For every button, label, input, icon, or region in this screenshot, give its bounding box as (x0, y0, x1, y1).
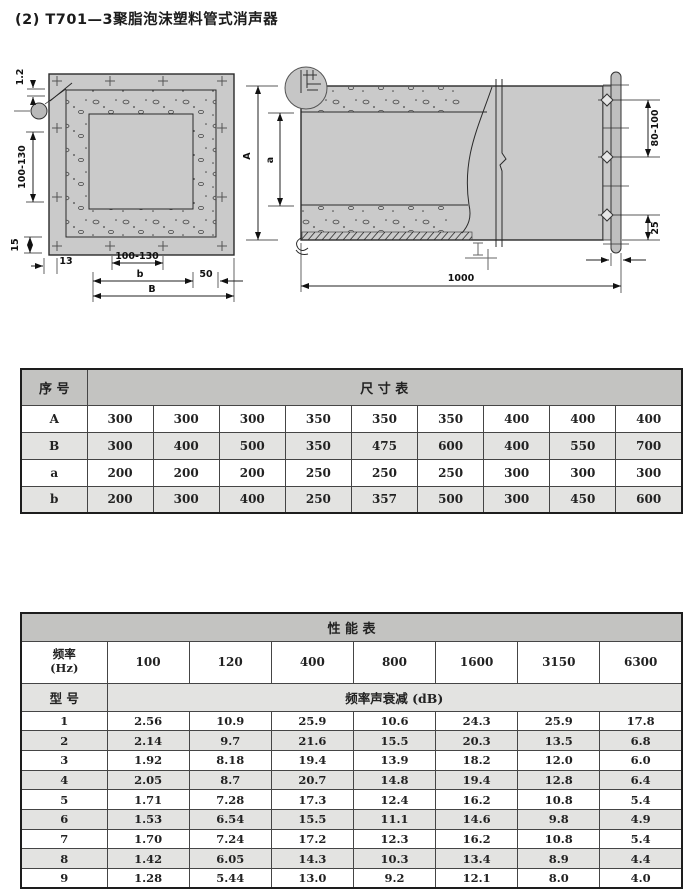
value-cell: 19.4 (436, 770, 518, 790)
svg-text:b: b (137, 269, 144, 280)
value-cell: 400 (484, 405, 550, 432)
value-cell: 450 (550, 486, 616, 513)
table-row: 42.058.720.714.819.412.86.4 (21, 770, 682, 790)
value-cell: 250 (418, 459, 484, 486)
value-cell: 5.44 (189, 869, 271, 889)
value-cell: 1.42 (107, 849, 189, 869)
svg-text:A: A (242, 152, 253, 160)
value-cell: 12.8 (518, 770, 600, 790)
value-cell: 12.4 (353, 790, 435, 810)
perf-table-body: 12.5610.925.910.624.325.917.822.149.721.… (21, 711, 682, 888)
row-label-cell: A (21, 405, 87, 432)
value-cell: 400 (153, 432, 219, 459)
value-cell: 6.05 (189, 849, 271, 869)
value-cell: 17.8 (600, 711, 682, 731)
table-row: 71.707.2417.212.316.210.85.4 (21, 829, 682, 849)
flange-detail-circle (285, 67, 327, 109)
value-cell: 10.9 (189, 711, 271, 731)
value-cell: 300 (87, 405, 153, 432)
value-cell: 20.3 (436, 731, 518, 751)
dimension-13: 13 (31, 256, 73, 274)
row-label-cell: 7 (21, 829, 107, 849)
table-row: a200200200250250250300300300 (21, 459, 682, 486)
svg-text:15: 15 (10, 238, 21, 251)
value-cell: 200 (219, 459, 285, 486)
value-cell: 6.4 (600, 770, 682, 790)
dimension-a: a (265, 113, 294, 206)
value-cell: 7.28 (189, 790, 271, 810)
value-cell: 500 (418, 486, 484, 513)
dimension-15: 15 (10, 237, 42, 253)
value-cell: 5.4 (600, 790, 682, 810)
value-cell: 300 (484, 459, 550, 486)
value-cell: 4.4 (600, 849, 682, 869)
dimension-B: B (93, 258, 234, 302)
value-cell: 400 (550, 405, 616, 432)
dimension-bottom-range: 100-130 (112, 251, 163, 270)
value-cell: 250 (351, 459, 417, 486)
value-cell: 8.18 (189, 750, 271, 770)
value-cell: 11.1 (353, 809, 435, 829)
value-cell: 200 (87, 459, 153, 486)
value-cell: 120 (189, 641, 271, 683)
row-label-cell: 8 (21, 849, 107, 869)
size-table-corner-label: 序 号 (21, 369, 87, 405)
value-cell: 21.6 (271, 731, 353, 751)
value-cell: 13.9 (353, 750, 435, 770)
callout-circle (31, 103, 47, 119)
table-row: b200300400250357500300450600 (21, 486, 682, 513)
row-label-cell: b (21, 486, 87, 513)
svg-text:1.2: 1.2 (15, 69, 26, 86)
value-cell: 500 (219, 432, 285, 459)
perf-table-header-row: 性 能 表 (21, 613, 682, 641)
table-row: B300400500350475600400550700 (21, 432, 682, 459)
table-row: 91.285.4413.09.212.18.04.0 (21, 869, 682, 889)
value-cell: 15.5 (353, 731, 435, 751)
value-cell: 350 (418, 405, 484, 432)
value-cell: 200 (87, 486, 153, 513)
row-label-cell: 9 (21, 869, 107, 889)
dimension-length: 1000 (301, 243, 621, 292)
value-cell: 300 (484, 486, 550, 513)
size-table-body: A300300300350350350400400400B30040050035… (21, 405, 682, 513)
table-row: 22.149.721.615.520.313.56.8 (21, 731, 682, 751)
value-cell: 10.3 (353, 849, 435, 869)
value-cell: 8.9 (518, 849, 600, 869)
side-section-drawing: A a 80-100 25 100 (242, 67, 661, 293)
row-label-cell: 6 (21, 809, 107, 829)
size-table-title: 尺 寸 表 (87, 369, 682, 405)
value-cell: 3150 (518, 641, 600, 683)
value-cell: 9.8 (518, 809, 600, 829)
value-cell: 200 (153, 459, 219, 486)
value-cell: 17.2 (271, 829, 353, 849)
value-cell: 18.2 (436, 750, 518, 770)
value-cell: 1.28 (107, 869, 189, 889)
value-cell: 300 (87, 432, 153, 459)
table-row: 31.928.1819.413.918.212.06.0 (21, 750, 682, 770)
value-cell: 350 (351, 405, 417, 432)
dimension-flange-thickness (586, 253, 646, 293)
frequency-row: 频率 (Hz) 100120400800160031506300 (21, 641, 682, 683)
value-cell: 300 (616, 459, 682, 486)
row-label-cell: B (21, 432, 87, 459)
value-cell: 14.6 (436, 809, 518, 829)
value-cell: 12.3 (353, 829, 435, 849)
value-cell: 1.92 (107, 750, 189, 770)
model-label-cell: 型 号 (21, 683, 107, 711)
table-row: 12.5610.925.910.624.325.917.8 (21, 711, 682, 731)
value-cell: 357 (351, 486, 417, 513)
value-cell: 100 (107, 641, 189, 683)
value-cell: 8.0 (518, 869, 600, 889)
value-cell: 20.7 (271, 770, 353, 790)
value-cell: 4.9 (600, 809, 682, 829)
value-cell: 25.9 (518, 711, 600, 731)
value-cell: 1.71 (107, 790, 189, 810)
value-cell: 7.24 (189, 829, 271, 849)
value-cell: 19.4 (271, 750, 353, 770)
svg-text:100-130: 100-130 (17, 145, 28, 189)
value-cell: 2.56 (107, 711, 189, 731)
value-cell: 10.8 (518, 829, 600, 849)
dimension-25: 25 (622, 215, 661, 240)
value-cell: 12.0 (518, 750, 600, 770)
size-table-header-row: 序 号 尺 寸 表 (21, 369, 682, 405)
table-row: 61.536.5415.511.114.69.84.9 (21, 809, 682, 829)
value-cell: 6300 (600, 641, 682, 683)
value-cell: 14.8 (353, 770, 435, 790)
value-cell: 10.6 (353, 711, 435, 731)
bottom-foam (302, 206, 452, 232)
value-cell: 350 (285, 432, 351, 459)
row-label-cell: 5 (21, 790, 107, 810)
svg-text:1000: 1000 (448, 273, 475, 284)
value-cell: 16.2 (436, 790, 518, 810)
frequency-label-line2: (Hz) (22, 662, 107, 676)
value-cell: 2.14 (107, 731, 189, 751)
value-cell: 1.70 (107, 829, 189, 849)
svg-text:50: 50 (199, 269, 213, 280)
value-cell: 800 (353, 641, 435, 683)
value-cell: 9.7 (189, 731, 271, 751)
value-cell: 16.2 (436, 829, 518, 849)
table-row: 51.717.2817.312.416.210.85.4 (21, 790, 682, 810)
value-cell: 13.4 (436, 849, 518, 869)
value-cell: 600 (418, 432, 484, 459)
value-cell: 14.3 (271, 849, 353, 869)
value-cell: 250 (285, 486, 351, 513)
value-cell: 550 (550, 432, 616, 459)
performance-table: 性 能 表 频率 (Hz) 100120400800160031506300 型… (20, 612, 683, 889)
row-label-cell: 4 (21, 770, 107, 790)
page-title: (2) T701—3聚脂泡沫塑料管式消声器 (15, 8, 278, 29)
value-cell: 300 (153, 486, 219, 513)
value-cell: 1600 (436, 641, 518, 683)
value-cell: 24.3 (436, 711, 518, 731)
table-row: 81.426.0514.310.313.48.94.4 (21, 849, 682, 869)
value-cell: 2.05 (107, 770, 189, 790)
value-cell: 25.9 (271, 711, 353, 731)
value-cell: 1.53 (107, 809, 189, 829)
value-cell: 400 (484, 432, 550, 459)
value-cell: 8.7 (189, 770, 271, 790)
svg-text:80-100: 80-100 (650, 109, 661, 146)
value-cell: 700 (616, 432, 682, 459)
frequency-label-line1: 频率 (22, 648, 107, 662)
value-cell: 300 (219, 405, 285, 432)
value-cell: 15.5 (271, 809, 353, 829)
svg-text:25: 25 (650, 221, 661, 234)
value-cell: 475 (351, 432, 417, 459)
hatched-strip (302, 232, 472, 240)
attenuation-label-cell: 频率声衰减 (dB) (107, 683, 682, 711)
frequency-label-cell: 频率 (Hz) (21, 641, 107, 683)
value-cell: 350 (285, 405, 351, 432)
dimension-left-range: 100-130 (17, 132, 44, 202)
size-table: 序 号 尺 寸 表 A300300300350350350400400400B3… (20, 368, 683, 514)
value-cell: 13.5 (518, 731, 600, 751)
value-cell: 300 (550, 459, 616, 486)
row-label-cell: a (21, 459, 87, 486)
value-cell: 12.1 (436, 869, 518, 889)
svg-text:13: 13 (59, 256, 72, 267)
table-row: A300300300350350350400400400 (21, 405, 682, 432)
value-cell: 600 (616, 486, 682, 513)
technical-drawings: 1.2 100-130 15 13 100-130 (0, 48, 700, 310)
row-label-cell: 1 (21, 711, 107, 731)
value-cell: 5.4 (600, 829, 682, 849)
section-mark (465, 243, 497, 270)
value-cell: 10.8 (518, 790, 600, 810)
row-label-cell: 2 (21, 731, 107, 751)
value-cell: 6.54 (189, 809, 271, 829)
value-cell: 400 (219, 486, 285, 513)
value-cell: 400 (616, 405, 682, 432)
value-cell: 250 (285, 459, 351, 486)
value-cell: 400 (271, 641, 353, 683)
dimension-wall-thickness: 1.2 (15, 69, 45, 104)
value-cell: 6.0 (600, 750, 682, 770)
dimension-b: b (93, 269, 193, 302)
svg-text:a: a (265, 157, 276, 163)
row-label-cell: 3 (21, 750, 107, 770)
dimension-bolt-spacing: 80-100 (648, 100, 661, 157)
model-row: 型 号 频率声衰减 (dB) (21, 683, 682, 711)
value-cell: 6.8 (600, 731, 682, 751)
value-cell: 9.2 (353, 869, 435, 889)
svg-text:100-130: 100-130 (115, 251, 159, 262)
value-cell: 4.0 (600, 869, 682, 889)
value-cell: 300 (153, 405, 219, 432)
perf-table-title: 性 能 表 (21, 613, 682, 641)
svg-text:B: B (148, 284, 155, 295)
value-cell: 17.3 (271, 790, 353, 810)
dimension-50: 50 (199, 269, 243, 288)
value-cell: 13.0 (271, 869, 353, 889)
air-passage (89, 114, 193, 209)
cross-section-drawing: 1.2 100-130 15 13 100-130 (10, 69, 243, 302)
